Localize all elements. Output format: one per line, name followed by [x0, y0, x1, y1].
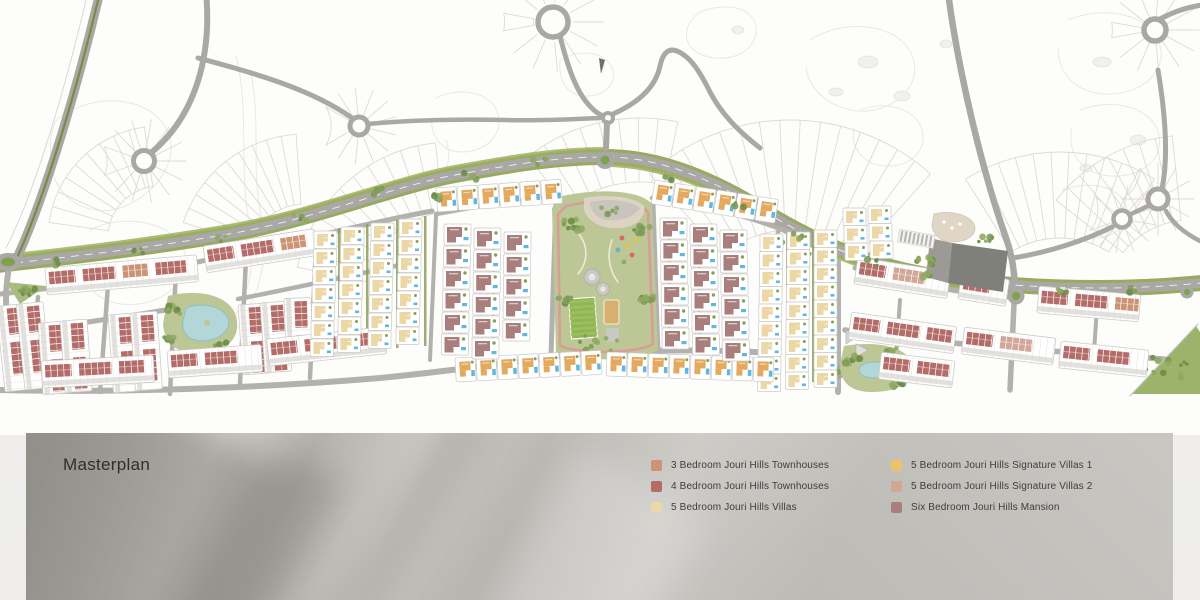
legend-item-label: Six Bedroom Jouri Hills Mansion: [911, 502, 1060, 513]
legend: 3 Bedroom Jouri Hills Townhouses 4 Bedro…: [651, 460, 1089, 513]
masterplan-map: [0, 0, 1200, 435]
villa-column: [868, 206, 893, 259]
legend-item: Six Bedroom Jouri Hills Mansion: [891, 502, 1089, 513]
central-park: [552, 191, 658, 361]
masterplan-page: Masterplan 3 Bedroom Jouri Hills Townhou…: [0, 0, 1200, 600]
legend-column-left: 3 Bedroom Jouri Hills Townhouses 4 Bedro…: [651, 460, 849, 513]
legend-item-label: 5 Bedroom Jouri Hills Signature Villas 2: [911, 481, 1092, 492]
villa-column: [310, 231, 337, 357]
mansion-column: [503, 232, 531, 341]
legend-item-label: 3 Bedroom Jouri Hills Townhouses: [671, 460, 829, 471]
legend-item-label: 5 Bedroom Jouri Hills Villas: [671, 502, 797, 513]
masterplan-title: Masterplan: [63, 455, 150, 475]
legend-swatch-icon: [651, 460, 662, 471]
villa-column: [814, 230, 837, 388]
villa-column: [396, 219, 422, 345]
masterplan-panel: Masterplan 3 Bedroom Jouri Hills Townhou…: [26, 433, 1173, 600]
legend-item: 4 Bedroom Jouri Hills Townhouses: [651, 481, 849, 492]
legend-item-label: 4 Bedroom Jouri Hills Townhouses: [671, 481, 829, 492]
legend-item: 5 Bedroom Jouri Hills Signature Villas 1: [891, 460, 1089, 471]
legend-item: 5 Bedroom Jouri Hills Signature Villas 2: [891, 481, 1089, 492]
villa-column: [843, 208, 868, 261]
masterplan-map-svg: [0, 0, 1200, 435]
legend-item: 5 Bedroom Jouri Hills Villas: [651, 502, 849, 513]
legend-item: 3 Bedroom Jouri Hills Townhouses: [651, 460, 849, 471]
legend-swatch-icon: [651, 481, 662, 492]
legend-swatch-icon: [891, 460, 902, 471]
panel-shadow: [116, 448, 347, 600]
villa-column: [337, 227, 364, 353]
legend-swatch-icon: [891, 481, 902, 492]
legend-swatch-icon: [651, 502, 662, 513]
townhouse-row: [41, 355, 154, 388]
panel-shadow: [259, 433, 499, 600]
legend-column-right: 5 Bedroom Jouri Hills Signature Villas 1…: [891, 460, 1089, 513]
legend-item-label: 5 Bedroom Jouri Hills Signature Villas 1: [911, 460, 1092, 471]
legend-swatch-icon: [891, 502, 902, 513]
villa-column: [368, 223, 394, 349]
villa-column: [785, 232, 810, 390]
